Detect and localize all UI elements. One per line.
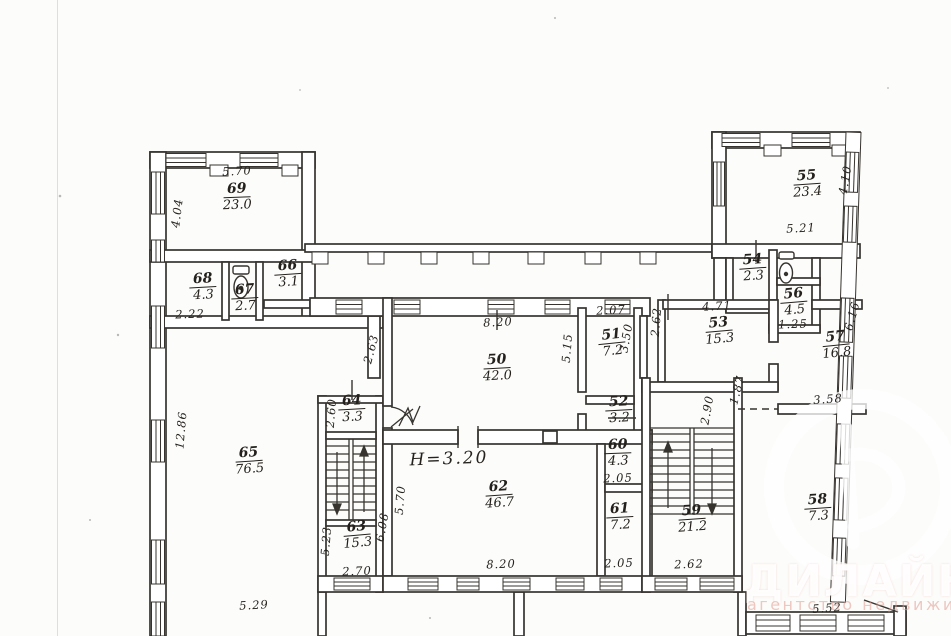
toilet-icon xyxy=(233,266,249,298)
watermark-tagline: агентство недвижимости xyxy=(747,595,951,614)
stair-down-arrow xyxy=(333,452,341,514)
scanned-floorplan-page: 6923.0684.3672.7663.16576.5643.36315.350… xyxy=(0,0,951,636)
floorplan-drawing xyxy=(0,0,951,636)
staircase-left xyxy=(326,439,376,520)
corridor-pilasters xyxy=(312,252,656,264)
toilet-icon xyxy=(779,252,794,283)
staircase-right xyxy=(650,428,734,514)
dilain-circle-d-logo xyxy=(774,399,950,575)
door-swing-icon xyxy=(391,406,420,427)
